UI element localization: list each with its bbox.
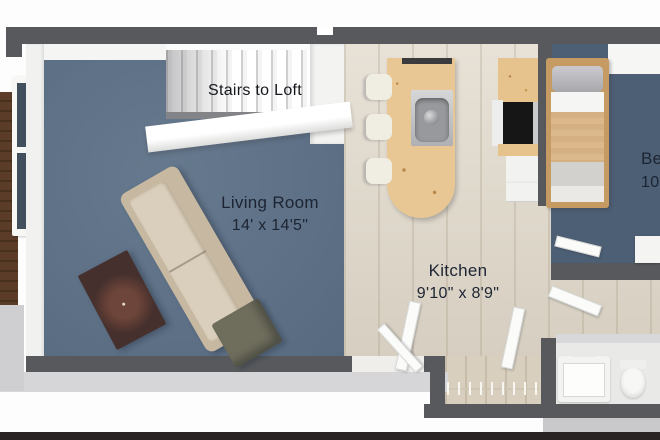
image-bottom-edge (0, 432, 660, 440)
left-interior-wall (26, 44, 44, 358)
left-wall-corner (6, 27, 22, 57)
bathroom-wall (541, 338, 556, 404)
counter (498, 144, 538, 156)
top-exterior-wall (6, 27, 660, 44)
bedroom-label-clipped: Be (641, 150, 660, 169)
living-bottom-wall (26, 356, 352, 372)
bar-stool (366, 158, 392, 184)
counter (498, 58, 538, 104)
bed-foot-sheet (551, 186, 604, 202)
bedroom-dimensions-clipped: 10 (641, 174, 660, 192)
stove-cooktop (503, 102, 533, 144)
kitchen-cabinet (506, 156, 538, 202)
exterior-wall-left (0, 305, 24, 391)
bed-throw (551, 162, 604, 186)
sink-faucet (424, 110, 439, 125)
bar-stool (366, 74, 392, 100)
stairs-to-loft (166, 50, 312, 112)
stove-side-panel (492, 100, 503, 146)
top-wall-window-notch (317, 27, 333, 35)
kitchen-dimensions: 9'10" x 8'9" (380, 285, 536, 303)
bed-blanket (551, 112, 604, 162)
bathroom-vanity (558, 356, 610, 402)
vestibule-bottom-wall (424, 404, 660, 418)
living-room-label: Living Room (180, 194, 360, 213)
bed-sheet (551, 92, 604, 112)
stairs-label: Stairs to Loft (170, 82, 340, 100)
nightstand (635, 236, 660, 263)
coffee-table-detail (122, 302, 126, 306)
vanity-backsplash (572, 351, 596, 357)
bar-stool (366, 114, 392, 140)
porch-strip (0, 372, 448, 392)
top-interior-wall-face (44, 44, 168, 60)
floorplan-render: Stairs to Loft Living Room 14' x 14'5" K… (0, 0, 660, 440)
bathroom-top-edge (556, 334, 660, 343)
kitchen-label: Kitchen (380, 262, 536, 281)
closet-hangers (447, 382, 539, 395)
stove-handle (533, 102, 538, 144)
toilet (621, 368, 645, 398)
pillow (552, 66, 603, 92)
bedroom-bottom-wall (551, 263, 660, 280)
bedroom-corner-wall (608, 44, 660, 74)
closet-wood-floor (445, 356, 541, 405)
vanity-basin (563, 363, 605, 397)
living-room-dimensions: 14' x 14'5" (180, 217, 360, 235)
island-edge (402, 58, 452, 64)
